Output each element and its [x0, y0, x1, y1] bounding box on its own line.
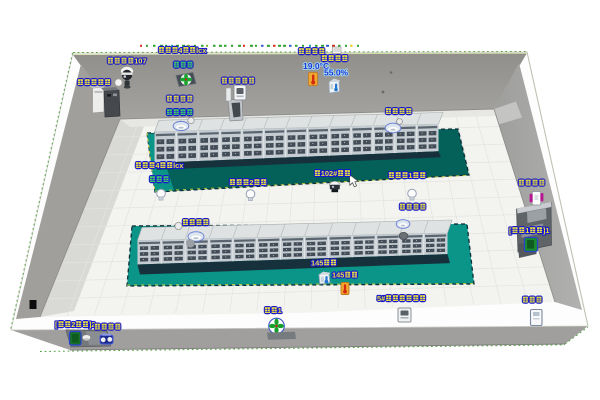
svg-text:2: 2 [249, 178, 253, 187]
svg-text:1: 1 [408, 171, 412, 180]
svg-text:1: 1 [525, 226, 529, 235]
svg-text:2: 2 [71, 320, 75, 329]
svg-text:1: 1 [278, 306, 282, 315]
svg-text:5#: 5# [377, 294, 385, 303]
svg-text:]1: ]1 [543, 226, 550, 235]
svg-text:102#: 102# [321, 169, 337, 178]
svg-text:55.0%: 55.0% [324, 68, 349, 78]
svg-text:145: 145 [311, 258, 323, 267]
svg-text:145: 145 [332, 271, 344, 280]
svg-text:lcx: lcx [196, 46, 207, 55]
svg-text:lcx: lcx [173, 161, 184, 170]
svg-text:107: 107 [134, 57, 146, 66]
